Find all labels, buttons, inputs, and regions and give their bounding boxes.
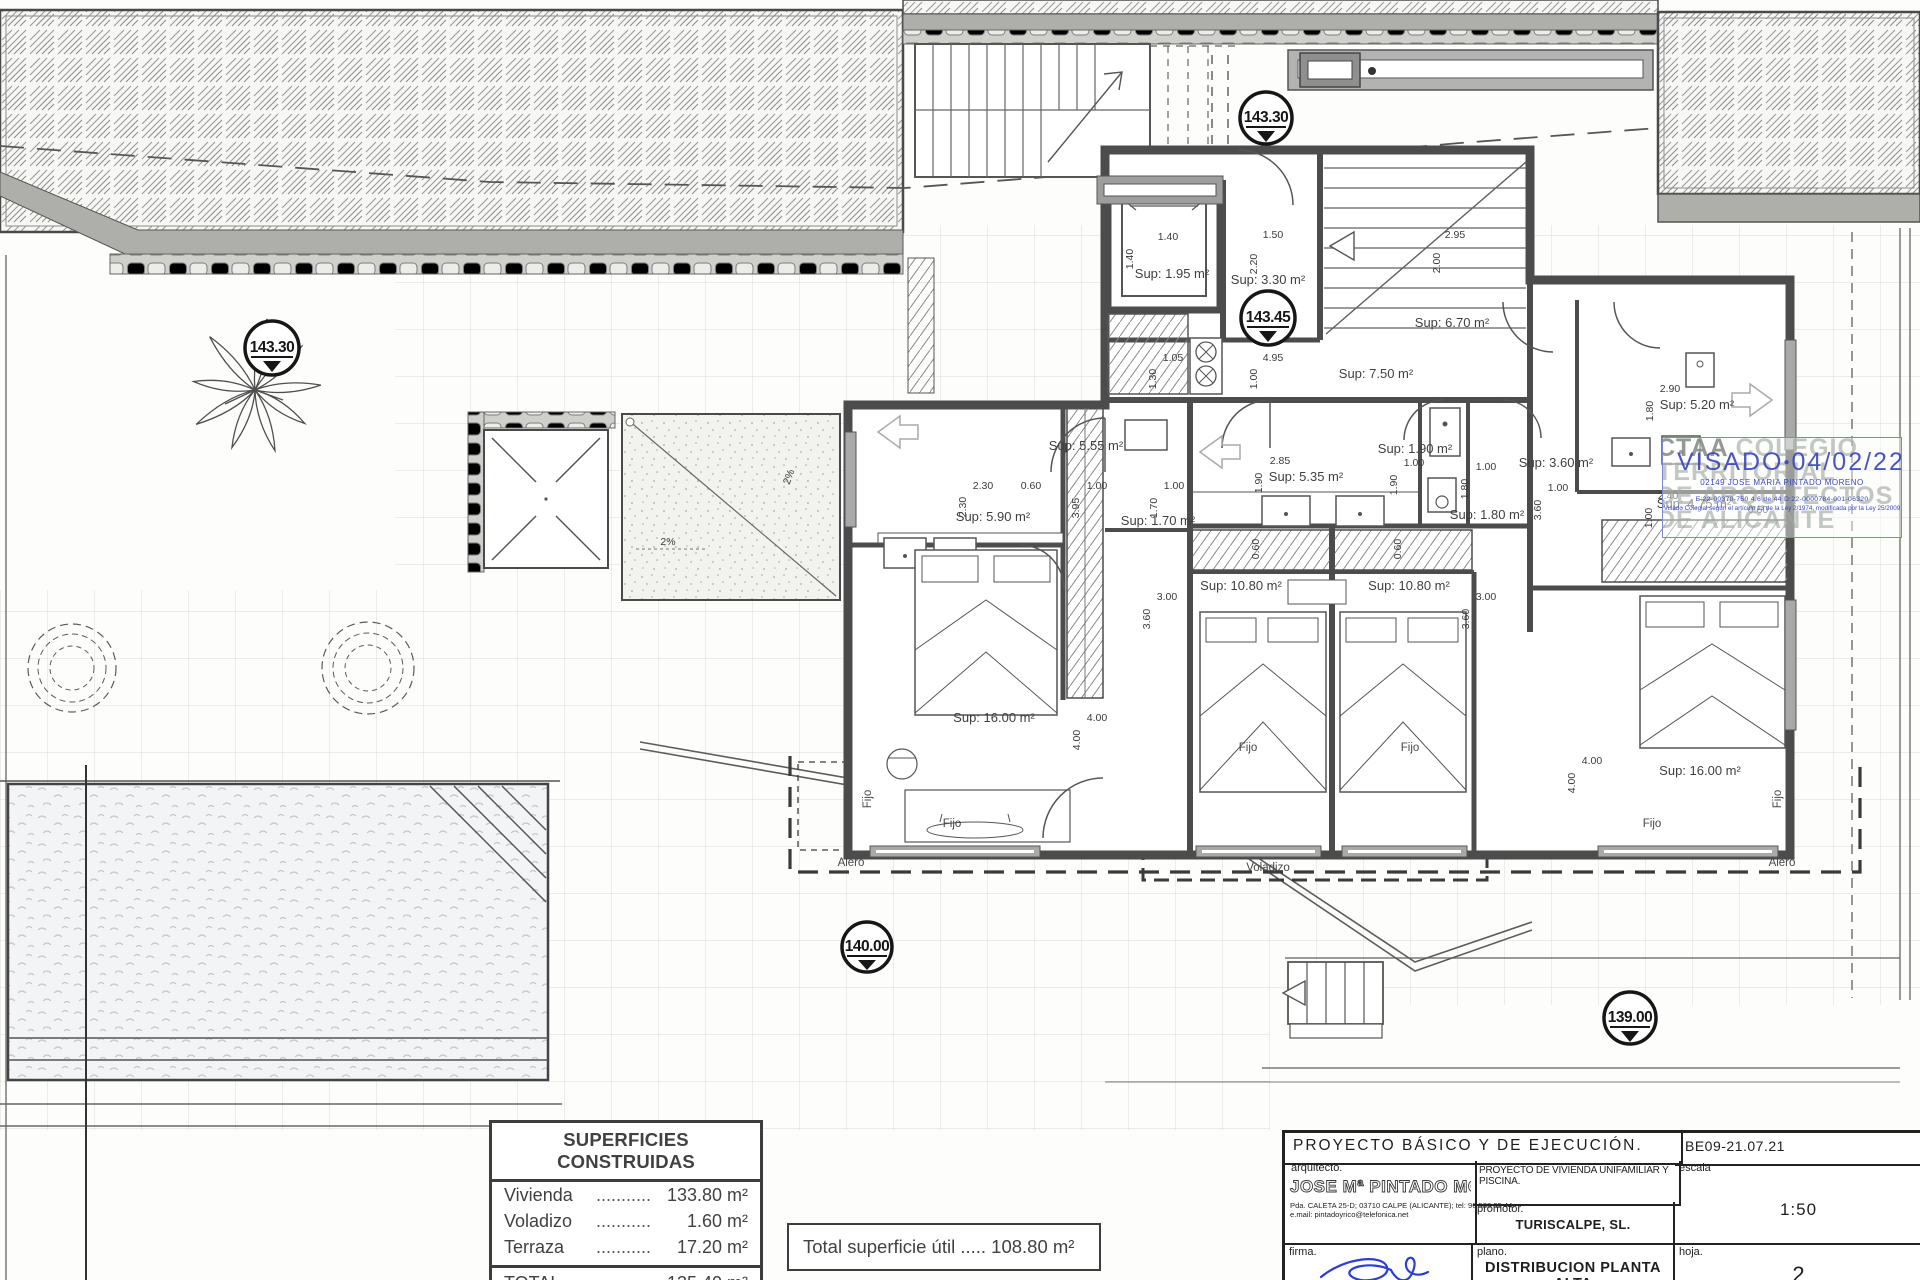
floor-plan-sheet: 2% 2%: [0, 0, 1920, 1280]
table-row: Vivienda ........... 133.80 m²: [492, 1182, 760, 1208]
dim: 1.70: [1148, 498, 1160, 519]
bed-middle-left: [1200, 612, 1326, 792]
dim: 2.00: [1431, 253, 1443, 274]
dim: 2.85: [1270, 455, 1291, 467]
row-dots: ...........: [596, 1273, 667, 1280]
dim: 1.00: [1643, 508, 1655, 529]
architect-name-outline: JOSE Mª PINTADO MORENO: [1287, 1174, 1471, 1198]
bed-master-left: [915, 550, 1057, 715]
scale-value: 1:50: [1675, 1200, 1920, 1220]
dim: 3.00: [1476, 591, 1497, 603]
elevation-value: 143.45: [1246, 309, 1291, 326]
stamp-refs: E:22-00370-750 4.6 de 44 D:22-0000784-00…: [1663, 496, 1901, 503]
promotor-label: promotor.: [1473, 1202, 1673, 1215]
signature-scribble: [1313, 1253, 1463, 1280]
superficies-title: SUPERFICIES CONSTRUIDAS: [492, 1123, 760, 1182]
row-value: 17.20 m²: [677, 1237, 748, 1258]
fijo-label: Fijo: [1772, 790, 1784, 809]
room-label: Sup: 10.80 m²: [1200, 578, 1282, 593]
dim: 1.00: [1164, 480, 1185, 492]
voladizo-label: Voladizo: [1246, 862, 1289, 874]
room-label: Sup: 3.60 m²: [1519, 455, 1594, 470]
room-label: Sup: 7.50 m²: [1339, 366, 1414, 381]
architect-label: arquitecto.: [1287, 1161, 1473, 1174]
useful-area-text: Total superficie útil ..... 108.80 m²: [803, 1236, 1074, 1258]
plano-name: DISTRIBUCION PLANTA ALTA: [1473, 1260, 1673, 1280]
dim: 1.00: [1404, 457, 1425, 469]
table-row: Terraza ........... 17.20 m²: [492, 1234, 760, 1260]
fijo-label: Fijo: [862, 790, 874, 809]
elevation-marker: 139.00: [1604, 992, 1656, 1044]
dim: 2.30: [973, 480, 994, 492]
dim: 2.90: [1660, 383, 1681, 395]
dim: 1.00: [1248, 369, 1260, 390]
elevation-marker: 143.30: [1240, 92, 1292, 144]
dim: 4.00: [1566, 773, 1578, 794]
architect-name: JOSE Mª PINTADO MORENO: [1290, 1177, 1471, 1196]
floor-plan-drawing: 2% 2%: [0, 0, 1920, 1280]
visa-stamp: CTAA COLEGIO TERRITORIAL DE ARQUITECTOS …: [1662, 437, 1902, 538]
signature-cell: firma.: [1285, 1245, 1473, 1280]
fijo-label: Fijo: [943, 818, 962, 830]
row-dots: ...........: [596, 1211, 687, 1232]
stamp-visado: VISADO: [1677, 448, 1783, 477]
interior-stair: [1324, 162, 1526, 334]
room-label: Sup: 5.55 m²: [1049, 438, 1124, 453]
dim: 0.60: [1250, 539, 1262, 560]
dim: 2.30: [957, 497, 969, 518]
room-label: Sup: 1.80 m²: [1450, 507, 1525, 522]
total-value: 135.40 m²: [667, 1273, 748, 1280]
room-label: Sup: 1.90 m²: [1378, 441, 1453, 456]
scale-cell: escala 1:50: [1675, 1161, 1920, 1245]
fijo-label: Fijo: [1239, 742, 1258, 754]
dim: 1.80: [1644, 401, 1656, 422]
row-value: 1.60 m²: [687, 1211, 748, 1232]
dim: 3.95: [1070, 498, 1082, 519]
promotor-name: TURISCALPE, SL.: [1473, 1217, 1673, 1232]
dim: 0.60: [1392, 539, 1404, 560]
bed-middle-right: [1340, 612, 1466, 792]
room-label: Sup: 1.95 m²: [1135, 266, 1210, 281]
dim: 3.60: [1532, 500, 1544, 521]
dim: 1.00: [1548, 482, 1569, 494]
fijo-label: Fijo: [1643, 818, 1662, 830]
headboard-shelf: [1288, 580, 1346, 604]
dim: 1.50: [1263, 229, 1284, 241]
slope-label: 2%: [660, 536, 675, 548]
room-label: Sup: 16.00 m²: [953, 710, 1035, 725]
dim: 2.95: [1445, 229, 1466, 241]
room-label: Sup: 16.00 m²: [1659, 763, 1741, 778]
row-value: 133.80 m²: [667, 1185, 748, 1206]
architect-cell: arquitecto. JOSE Mª PINTADO MORENO Pda. …: [1285, 1161, 1477, 1245]
elevation-value: 140.00: [845, 938, 889, 955]
sheet-cell: hoja. 2: [1675, 1245, 1920, 1280]
stamp-date: 04/02/22: [1792, 448, 1902, 477]
promotor-cell: promotor. TURISCALPE, SL.: [1473, 1202, 1675, 1245]
fijo-label: Fijo: [1401, 742, 1420, 754]
dim: 1.80: [1459, 479, 1471, 500]
table-row: Voladizo ........... 1.60 m²: [492, 1208, 760, 1234]
dim: 1.40: [1158, 231, 1179, 243]
dim: 1.90: [1253, 473, 1265, 494]
row-label: Voladizo: [504, 1211, 596, 1232]
dim: 4.00: [1087, 712, 1108, 724]
dim: 4.95: [1263, 352, 1284, 364]
project-name-cell: PROYECTO DE VIVIENDA UNIFAMILIAR Y PISCI…: [1473, 1161, 1681, 1206]
elevation-marker: 143.30: [245, 321, 299, 375]
elevation-marker: 143.45: [1241, 291, 1295, 345]
dim: 4.00: [1582, 755, 1603, 767]
swimming-pool: [0, 765, 562, 1280]
dim: 1.00: [1087, 480, 1108, 492]
room-label: Sup: 5.35 m²: [1269, 469, 1344, 484]
elevation-value: 143.30: [250, 339, 294, 356]
superficies-table: SUPERFICIES CONSTRUIDAS Vivienda .......…: [489, 1120, 763, 1280]
dim: 1.30: [1147, 369, 1159, 390]
title-block: PROYECTO BÁSICO Y DE EJECUCIÓN. BE09-21.…: [1282, 1130, 1920, 1280]
architect-address: Pda. CALETA 25-D; 03710 CALPE (ALICANTE)…: [1287, 1201, 1473, 1210]
row-dots: ...........: [596, 1185, 667, 1206]
hatched-ground-top-strip: [903, 0, 1658, 44]
sheet-number: 2: [1675, 1262, 1920, 1280]
dim: 1.05: [1163, 352, 1184, 364]
useful-area-box: Total superficie útil ..... 108.80 m²: [787, 1223, 1101, 1271]
sheet-label: hoja.: [1675, 1245, 1920, 1258]
alero-label: Alero: [838, 857, 865, 869]
room-label: Sup: 6.70 m²: [1415, 315, 1490, 330]
exterior-stair-bottom: [1283, 962, 1383, 1038]
total-label: TOTAL: [504, 1273, 596, 1280]
dim: 1.40: [1124, 249, 1136, 270]
room-label: Sup: 5.20 m²: [1660, 397, 1735, 412]
dim: 1.00: [1476, 461, 1497, 473]
dim: 3.60: [1141, 609, 1153, 630]
alero-label: Alero: [1769, 857, 1796, 869]
row-dots: ...........: [596, 1237, 677, 1258]
hatched-ground-top-left: [0, 10, 903, 274]
flat-roof-square: 2% 2%: [622, 414, 840, 600]
stamp-colegiado: 02149 JOSE MARIA PINTADO MORENO: [1663, 478, 1901, 487]
dim: 3.60: [1460, 609, 1472, 630]
elevation-value: 143.30: [1244, 109, 1288, 126]
table-total-row: TOTAL ........... 135.40 m²: [492, 1265, 760, 1280]
room-label: Sup: 10.80 m²: [1368, 578, 1450, 593]
scale-label: escala: [1675, 1161, 1920, 1174]
dim: 1.90: [1388, 475, 1400, 496]
plano-cell: plano. DISTRIBUCION PLANTA ALTA: [1473, 1245, 1675, 1280]
dim: 2.20: [1248, 254, 1260, 275]
stamp-legal: Visado Colegial según el artículo 13 de …: [1663, 505, 1901, 512]
bed-master-right: [1640, 596, 1785, 748]
hatched-ground-top-right: [1658, 12, 1920, 222]
elevation-value: 139.00: [1608, 1009, 1652, 1026]
stamp-dot: ●: [1783, 457, 1791, 468]
row-label: Vivienda: [504, 1185, 596, 1206]
stamp-content: VISADO ● 04/02/22 02149 JOSE MARIA PINTA…: [1663, 438, 1901, 537]
dim: 4.00: [1071, 730, 1083, 751]
dim: 3.00: [1157, 591, 1178, 603]
plano-label: plano.: [1473, 1245, 1673, 1258]
elevation-marker: 140.00: [842, 922, 892, 972]
room-label: Sup: 3.30 m²: [1231, 272, 1306, 287]
skylight-square: [468, 412, 615, 572]
row-label: Terraza: [504, 1237, 596, 1258]
architect-email: e.mail: pintadoyrico@telefonica.net: [1287, 1210, 1473, 1219]
dim: 0.60: [1021, 480, 1042, 492]
